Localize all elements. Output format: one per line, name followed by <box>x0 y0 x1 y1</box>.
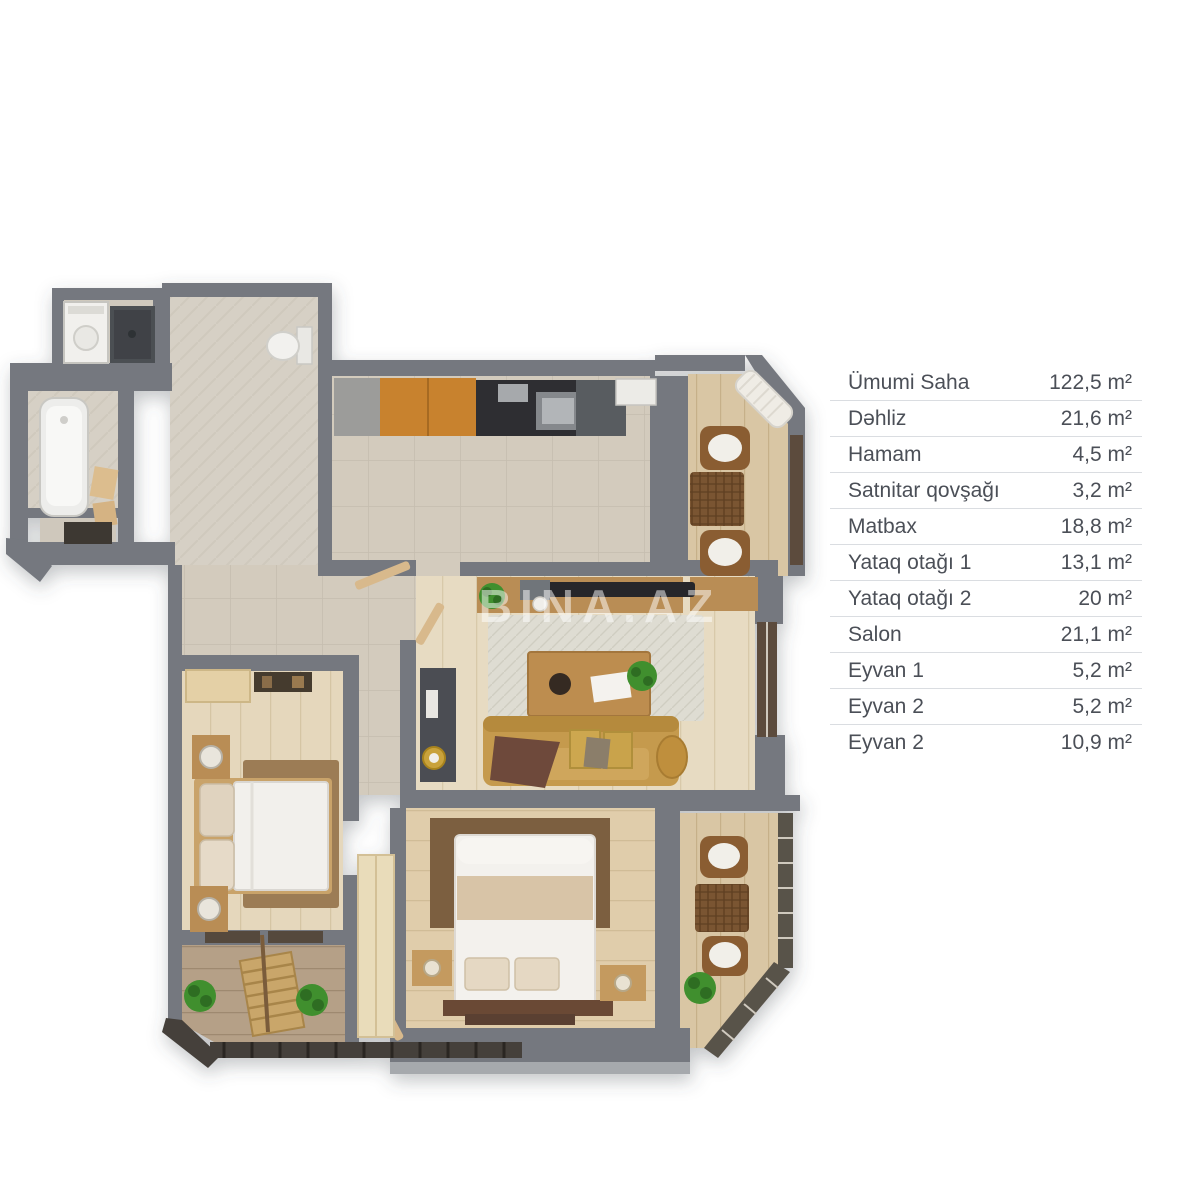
sofa <box>483 716 687 788</box>
wall-outer-edge <box>390 1062 690 1074</box>
bathtub <box>40 398 88 516</box>
room-area: 122,5 m² <box>1049 371 1132 395</box>
legend-row: Satnitar qovşağı3,2 m² <box>830 472 1142 508</box>
room-label: Yataq otağı 1 <box>848 551 971 575</box>
room-area: 5,2 m² <box>1072 659 1132 683</box>
bed-2-stripe <box>457 876 593 920</box>
area-table-rows: Ümumi Saha122,5 m²Dəhliz21,6 m²Hamam4,5 … <box>830 365 1142 760</box>
room-label: Hamam <box>848 443 922 467</box>
legend-row: Matbax18,8 m² <box>830 508 1142 544</box>
room-label: Salon <box>848 623 902 647</box>
legend-row: Yataq otağı 113,1 m² <box>830 544 1142 580</box>
room-label: Satnitar qovşağı <box>848 479 1000 503</box>
legend-row: Hamam4,5 m² <box>830 436 1142 472</box>
lamp <box>200 746 222 768</box>
dresser <box>186 670 250 702</box>
room-label: Eyvan 2 <box>848 695 924 719</box>
balcony-tr-window <box>790 435 803 565</box>
balcony-right-window <box>778 813 793 968</box>
wicker-table <box>690 472 744 526</box>
bed-1-pillow <box>200 784 234 836</box>
room-label: Eyvan 2 <box>848 731 924 755</box>
room-label: Ümumi Saha <box>848 371 969 395</box>
page: BINA.AZ Ümumi Saha122,5 m²Dəhliz21,6 m²H… <box>0 0 1200 1200</box>
bed-2-pillow <box>465 958 509 990</box>
storage-shelf <box>64 522 112 544</box>
bedroom1-window <box>268 931 323 943</box>
room-area: 21,6 m² <box>1061 407 1132 431</box>
plant <box>684 972 716 1004</box>
legend-row: Dəhliz21,6 m² <box>830 400 1142 436</box>
legend-row: Salon21,1 m² <box>830 616 1142 652</box>
bed-1-pillow <box>200 840 234 890</box>
lamp <box>198 898 220 920</box>
room-area: 4,5 m² <box>1072 443 1132 467</box>
sofa-pillow <box>583 737 610 769</box>
legend-row: Eyvan 210,9 m² <box>830 724 1142 760</box>
floor-lamp <box>423 747 445 769</box>
legend-row: Eyvan 15,2 m² <box>830 652 1142 688</box>
room-label: Yataq otağı 2 <box>848 587 971 611</box>
room-area: 20 m² <box>1078 587 1132 611</box>
floorplan <box>6 283 805 1074</box>
lamp <box>424 960 440 976</box>
bed-1 <box>234 782 328 890</box>
room-label: Dəhliz <box>848 407 906 431</box>
ottoman <box>657 736 687 778</box>
room-label: Eyvan 1 <box>848 659 924 683</box>
legend-row: Eyvan 25,2 m² <box>830 688 1142 724</box>
room-area: 10,9 m² <box>1061 731 1132 755</box>
lamp <box>615 975 631 991</box>
washing-machine <box>64 302 108 363</box>
wicker-table <box>695 884 749 932</box>
fridge <box>616 379 656 405</box>
room-label: Matbax <box>848 515 917 539</box>
plant <box>627 661 657 691</box>
room-area: 18,8 m² <box>1061 515 1132 539</box>
plant <box>296 984 328 1016</box>
kitchen-cabinets <box>334 378 656 436</box>
headboard <box>443 1000 613 1016</box>
room-area: 3,2 m² <box>1072 479 1132 503</box>
area-table: Ümumi Saha122,5 m²Dəhliz21,6 m²Hamam4,5 … <box>830 365 1142 760</box>
legend-row: Ümumi Saha122,5 m² <box>830 365 1142 400</box>
plant <box>184 980 216 1012</box>
room-area: 21,1 m² <box>1061 623 1132 647</box>
bedroom1-window <box>205 931 260 943</box>
watermark: BINA.AZ <box>479 580 722 632</box>
shower <box>110 306 155 363</box>
bed-2-pillow <box>515 958 559 990</box>
kitchen-sink <box>498 384 528 402</box>
legend-row: Yataq otağı 220 m² <box>830 580 1142 616</box>
balcony-right-furniture <box>695 836 749 976</box>
room-area: 5,2 m² <box>1072 695 1132 719</box>
room-area: 13,1 m² <box>1061 551 1132 575</box>
